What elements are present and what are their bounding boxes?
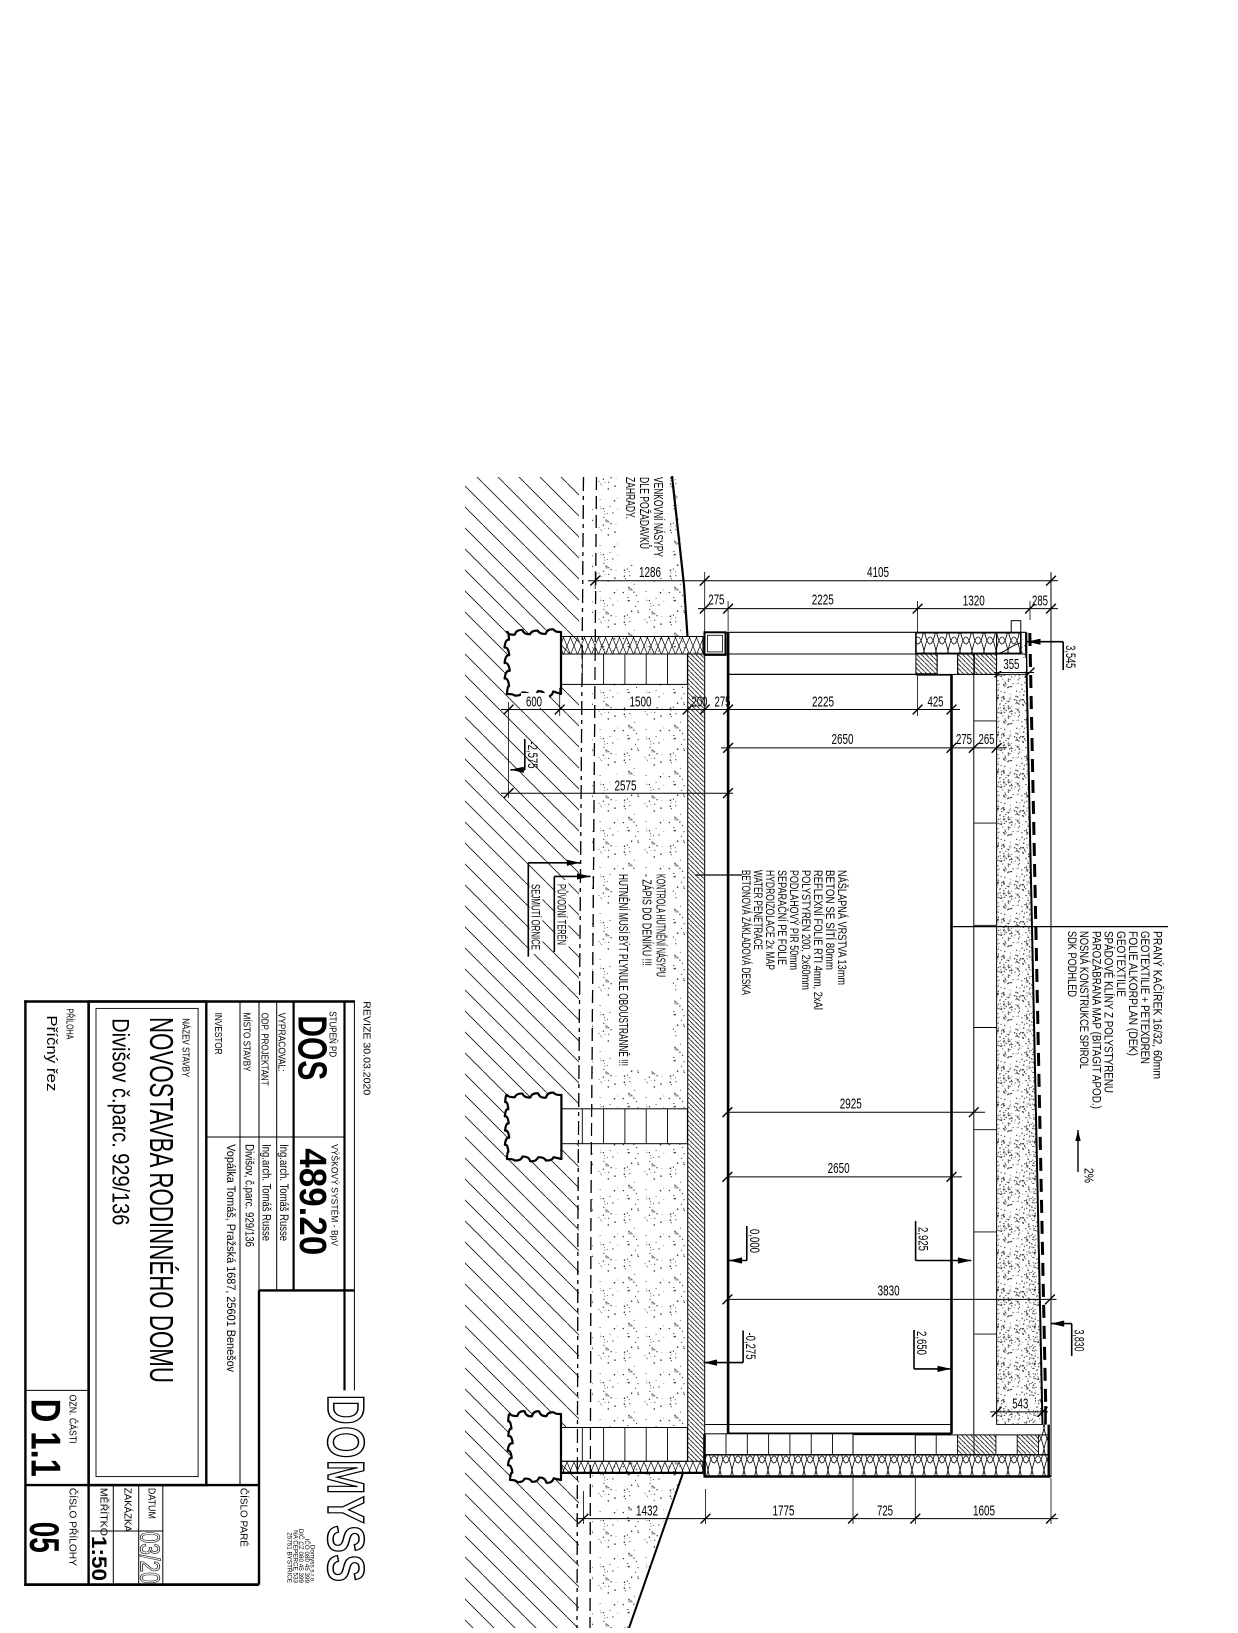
svg-text:1320: 1320 [963,593,985,610]
svg-text:HYDROIZOLACE 2x MAP: HYDROIZOLACE 2x MAP [763,870,775,970]
svg-text:KONTROLA HUTNĚNÍ NÁSYPU: KONTROLA HUTNĚNÍ NÁSYPU [654,874,669,977]
svg-text:Příčný řez: Příčný řez [43,1015,59,1091]
svg-text:NÁŠLAPNÁ VRSTVA 13mm: NÁŠLAPNÁ VRSTVA 13mm [835,870,848,985]
svg-text:BETON SE SÍTÍ 80mm: BETON SE SÍTÍ 80mm [823,870,836,970]
svg-text:Ing.arch. Tomáš Russe: Ing.arch. Tomáš Russe [277,1144,289,1241]
svg-text:ODP. PROJEKTANT: ODP. PROJEKTANT [259,1013,270,1086]
svg-text:725: 725 [877,1503,893,1520]
svg-text:2,925: 2,925 [916,1227,932,1251]
svg-text:2%: 2% [1082,1168,1097,1183]
svg-text:ČÍSLO PARÉ: ČÍSLO PARÉ [238,1488,251,1547]
svg-text:275: 275 [708,592,724,609]
svg-text:265: 265 [979,731,995,748]
svg-text:POLYSTYREN 200, 2x60mm: POLYSTYREN 200, 2x60mm [799,870,811,990]
svg-text:SDK PODHLED: SDK PODHLED [1065,931,1077,997]
svg-text:03/20: 03/20 [135,1532,166,1584]
svg-text:Divišov č.parc. 929/136: Divišov č.parc. 929/136 [107,1018,134,1225]
svg-text:425: 425 [928,694,944,711]
svg-text:REFLEXNÍ FOLIE RTI 4mm, 2xAl: REFLEXNÍ FOLIE RTI 4mm, 2xAl [811,870,824,1010]
svg-text:DOS: DOS [289,1015,335,1080]
svg-text:200: 200 [692,694,708,711]
svg-text:05: 05 [21,1522,68,1553]
svg-text:1:50: 1:50 [87,1536,110,1581]
svg-text:FOLIE ALKORPLAN (DEK): FOLIE ALKORPLAN (DEK) [1126,931,1138,1056]
svg-text:ZAKÁZKA: ZAKÁZKA [122,1488,135,1532]
svg-text:1432: 1432 [636,1503,658,1520]
svg-text:355: 355 [1003,656,1019,673]
svg-text:PŘÍLOHA: PŘÍLOHA [64,1008,77,1039]
svg-text:600: 600 [526,694,542,711]
svg-text:285: 285 [1032,593,1048,610]
svg-text:489.20: 489.20 [291,1148,333,1255]
svg-text:-0,275: -0,275 [743,1333,759,1360]
svg-text:ZAHRADY.: ZAHRADY. [623,477,637,519]
svg-text:543: 543 [1012,1396,1028,1413]
svg-text:25751 BYSTŘICE: 25751 BYSTŘICE [286,1532,295,1583]
svg-text:3,545: 3,545 [1063,645,1079,668]
svg-text:2,650: 2,650 [914,1331,930,1355]
svg-text:NOVOSTAVBA RODINNÉHO DOMU: NOVOSTAVBA RODINNÉHO DOMU [143,1017,180,1383]
svg-text:1775: 1775 [773,1503,795,1520]
svg-text:D 1.1: D 1.1 [22,1399,69,1477]
svg-text:PŮVODNÍ TERÉN: PŮVODNÍ TERÉN [555,884,568,945]
svg-text:MÍSTO STAVBY: MÍSTO STAVBY [240,1013,253,1072]
svg-text:SEJMUTÍ ORNICE: SEJMUTÍ ORNICE [529,884,542,950]
svg-text:275: 275 [715,694,731,711]
svg-text:2225: 2225 [812,694,834,711]
svg-text:- ZÁPIS DO DENÍKU !!!: - ZÁPIS DO DENÍKU !!! [640,874,655,966]
svg-text:Ing.arch. Tomáš Russe: Ing.arch. Tomáš Russe [259,1144,271,1241]
svg-text:3,830: 3,830 [1072,1330,1088,1352]
svg-text:NÁZEV STAVBY: NÁZEV STAVBY [180,1018,193,1077]
svg-text:-2,575: -2,575 [525,742,541,769]
svg-text:VENKOVNÍ NÁSYPY: VENKOVNÍ NÁSYPY [651,477,666,557]
svg-text:4105: 4105 [867,564,889,581]
svg-text:PRANÝ KAČÍREK 16/32, 60mm: PRANÝ KAČÍREK 16/32, 60mm [1150,931,1163,1079]
svg-text:275: 275 [956,731,972,748]
svg-text:WATER PENETRACE: WATER PENETRACE [751,870,763,950]
svg-text:DOMYSS: DOMYSS [316,1395,374,1584]
svg-text:0,000: 0,000 [747,1229,763,1253]
svg-text:1500: 1500 [630,694,652,711]
svg-text:DLE POŽADAVKŮ: DLE POŽADAVKŮ [637,477,652,549]
svg-text:VYPRACOVAL:: VYPRACOVAL: [276,1013,287,1072]
svg-text:DATUM: DATUM [146,1488,157,1519]
svg-text:2225: 2225 [812,592,834,609]
svg-text:1286: 1286 [639,564,661,581]
svg-text:2925: 2925 [840,1096,862,1113]
svg-text:SPÁDOVÉ KLÍNY Z POLYSTYRENU: SPÁDOVÉ KLÍNY Z POLYSTYRENU [1102,931,1115,1093]
svg-text:BETONOVÁ ZÁKLADOVÁ DESKA: BETONOVÁ ZÁKLADOVÁ DESKA [739,870,752,995]
svg-text:MĚŘÍTKO: MĚŘÍTKO [98,1488,111,1536]
svg-text:1605: 1605 [973,1503,995,1520]
svg-text:GEOTEXTILIE: GEOTEXTILIE [1114,931,1126,997]
svg-text:REVIZE 30.03.2020: REVIZE 30.03.2020 [361,1001,372,1095]
svg-text:NOSNÁ KONSTRUKCE SPIROL: NOSNÁ KONSTRUKCE SPIROL [1077,931,1090,1069]
svg-text:2575: 2575 [615,778,637,795]
svg-text:2650: 2650 [832,731,854,748]
svg-text:GEOTEXTILIE + PETEXDREN: GEOTEXTILIE + PETEXDREN [1138,931,1150,1064]
svg-text:3830: 3830 [878,1283,900,1300]
svg-text:SEPARAČNÍ PE FOLIE: SEPARAČNÍ PE FOLIE [775,870,788,965]
svg-text:Vopálka Tomáš, Pražská 1687, 2: Vopálka Tomáš, Pražská 1687, 25601 Beneš… [224,1144,236,1372]
svg-text:PAROZÁBRANA MAP (BITAGIT APOD.: PAROZÁBRANA MAP (BITAGIT APOD.) [1089,931,1102,1109]
svg-text:HUTNĚNÍ MUSÍ BÝT PLYNULE OBOUS: HUTNĚNÍ MUSÍ BÝT PLYNULE OBOUSTRANNĚ !!! [616,874,631,1066]
svg-text:PODLAHOVÝ PIR 50mm: PODLAHOVÝ PIR 50mm [787,870,800,970]
svg-text:2650: 2650 [828,1160,850,1177]
svg-text:Divišov, č.parc. 929/136: Divišov, č.parc. 929/136 [242,1144,254,1247]
svg-text:INVESTOR: INVESTOR [212,1013,223,1055]
